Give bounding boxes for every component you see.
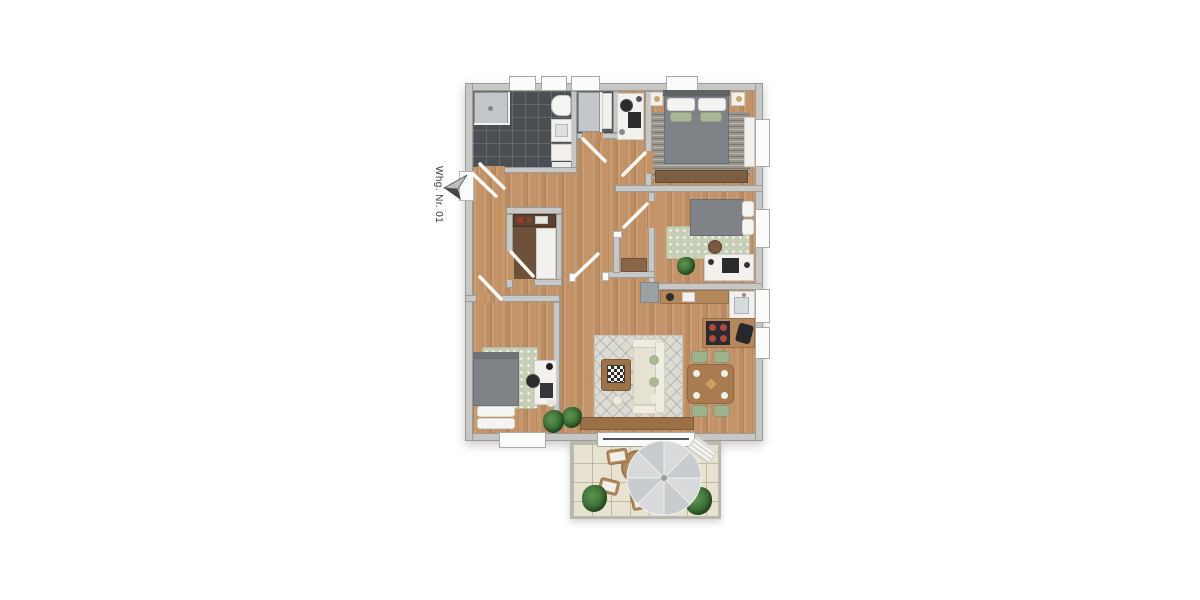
desk-item [744, 262, 750, 268]
bed-pillow [742, 201, 754, 217]
door-opening-bedroom1 [644, 151, 653, 174]
place-setting [721, 392, 728, 399]
dining-chair [713, 405, 730, 417]
bed-pillow [477, 406, 515, 417]
shower-drain [488, 106, 493, 111]
place-setting [693, 392, 700, 399]
door-opening-bath1 [477, 166, 505, 175]
sideboard-item-white [535, 216, 548, 224]
tv-bench [580, 417, 694, 430]
dining-chair [713, 351, 730, 363]
desk-lamp [546, 363, 553, 370]
place-setting [721, 370, 728, 377]
wall-storage-bottom [534, 279, 562, 286]
wall-storage-right [556, 214, 562, 286]
burner [720, 324, 727, 331]
lamp [736, 96, 742, 102]
door-post [613, 231, 622, 238]
wardrobe [744, 117, 755, 167]
exterior-wall-left-lower [465, 199, 473, 441]
window-kitchen-a [755, 289, 770, 323]
toilet [551, 95, 571, 116]
terrace-chair [606, 448, 629, 466]
kitchen-sink [734, 297, 749, 314]
window-bath1-b [541, 76, 567, 91]
window-bedroom1 [666, 76, 698, 91]
kettle [666, 293, 674, 301]
accent-pillow [670, 112, 692, 122]
wall-bedroom1-bottom [615, 185, 763, 192]
shower-glass [508, 92, 510, 125]
burner [720, 335, 727, 342]
door-opening-bedroom3 [476, 294, 502, 303]
desk-chair [526, 374, 540, 388]
bed-pillow [698, 98, 726, 111]
wall-bath1-bottom [504, 167, 577, 173]
bath2-vanity [602, 93, 612, 129]
wall-bedroom2-bottom [648, 283, 763, 290]
hall-bench [621, 258, 647, 272]
sofa-pillow-green [649, 355, 659, 365]
bed [473, 358, 519, 406]
wall-bedroom3-top-right [501, 295, 560, 302]
bed-pillow [667, 98, 695, 111]
sofa-pillow-green [649, 377, 659, 387]
shower [578, 92, 600, 132]
fridge [640, 282, 659, 303]
door-opening-bath2 [582, 132, 603, 141]
sofa-pillow-white [650, 394, 659, 403]
bed-pillow [742, 219, 754, 235]
storage-wardrobe [536, 228, 556, 279]
desk-item [708, 259, 714, 265]
dining-chair [691, 405, 708, 417]
exterior-wall-left-upper [465, 83, 473, 173]
side-tray [612, 395, 623, 406]
burner [709, 324, 716, 331]
faucet [742, 293, 746, 297]
dining-chair [691, 351, 708, 363]
apartment-label: Whg. Nr. 01 [433, 166, 444, 230]
office-monitor [628, 112, 641, 128]
desk-item [636, 96, 642, 102]
window-kitchen-b [755, 327, 770, 359]
desk-item [547, 399, 555, 407]
bath-cabinet [551, 144, 572, 161]
accent-pillow [700, 112, 722, 122]
window-bedroom2-right [755, 209, 770, 248]
door-opening-bedroom2 [647, 201, 656, 228]
door-post [602, 272, 609, 281]
wall-storage-left-lower [506, 279, 513, 288]
bed-pillow [477, 418, 515, 429]
shower-glass [474, 123, 510, 125]
wall-storage-left-upper [506, 214, 513, 252]
bed [690, 199, 743, 236]
door-opening-storage [505, 251, 514, 280]
bath-shelf [552, 162, 571, 167]
window-bedroom3 [499, 432, 546, 448]
sink-basin [555, 124, 568, 137]
game-board [607, 365, 625, 383]
terrace-sliding-door-rail [603, 438, 689, 440]
office-chair [620, 99, 633, 112]
laptop [540, 383, 553, 398]
coffee-machine [682, 292, 695, 302]
floor-plan-page: { "labels": { "apartment": "Whg. Nr. 01"… [0, 0, 1200, 600]
place-setting [693, 370, 700, 377]
desk-item [619, 129, 625, 135]
desk-chair [708, 240, 722, 254]
burner [709, 335, 716, 342]
window-bedroom1-right [755, 119, 770, 167]
window-bath1-a [509, 76, 536, 91]
wall-storage-top [506, 207, 562, 214]
sideboard-item-red [517, 217, 523, 223]
door-post [569, 273, 576, 282]
sideboard-item [527, 217, 532, 222]
dresser [655, 170, 748, 183]
window-bath2 [571, 76, 600, 91]
lamp [654, 96, 660, 102]
entrance-door-opening [459, 171, 474, 201]
wall-hall-stub [613, 236, 620, 273]
monitor [722, 258, 739, 273]
